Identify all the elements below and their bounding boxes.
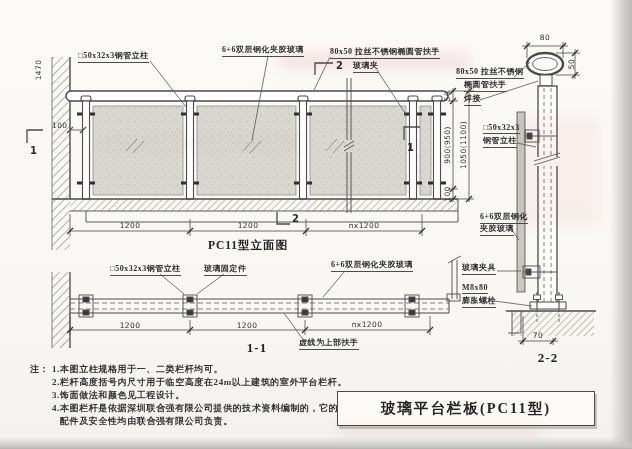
sheet-title: 玻璃平台栏板(PC11型)	[381, 399, 551, 418]
detail-slab	[506, 311, 596, 336]
rail-plan-lines	[70, 299, 449, 313]
bleed-through-mark	[100, 136, 300, 152]
detail-bolt-label-2: 膨胀螺栓	[462, 295, 496, 308]
drawing-sheet: □50x32x3钢管立柱 6+6双层钢化夹胶玻璃 80x50 拉丝不锈钢椭圆管扶…	[0, 0, 632, 449]
detail-dim-70: 70	[533, 331, 543, 340]
detail-post-label-1: □50x32x3	[483, 123, 520, 134]
section11-dim-bay2: 1200	[237, 321, 258, 330]
post-plan-clamps	[79, 295, 419, 317]
section11-dim-bay1: 1200	[120, 321, 141, 330]
section11-glass-label: 6+6双层钢化夹胶玻璃	[331, 259, 413, 272]
note-line-1: 1.本图立柱规格用于一、二类栏杆均可。	[52, 363, 223, 376]
page-edge-bottom	[0, 437, 632, 449]
detail-bolt-label-1: M8x80	[462, 283, 488, 294]
dim-bay1: 1200	[120, 221, 141, 230]
bleed-through-mark	[520, 115, 600, 225]
bleed-through-mark	[280, 52, 470, 70]
dim-100-offset: 100	[52, 121, 68, 130]
note-line-4: 4.本图栏杆是依据深圳联合强有限公司提供的技术资料编制的，它的	[52, 402, 338, 415]
detail-weld-label: 焊接	[464, 93, 481, 106]
dim-900-950: 900(950)	[443, 126, 452, 164]
section-marker-2-bottom: 2	[292, 213, 299, 224]
note-line-2: 2.栏杆高度括号内尺寸用于临空高度在24m以上建筑的室外平台栏杆。	[52, 376, 347, 389]
wall-hatch	[52, 272, 70, 348]
section11-fixing-label: 玻璃固定件	[204, 263, 247, 276]
dim-bay2: 1200	[238, 221, 259, 230]
page-edge-right	[610, 0, 632, 449]
detail-post-label-2: 钢管立柱	[483, 135, 517, 148]
dim-1470: 1470	[34, 60, 43, 81]
note-line-3: 3.饰面做法和颜色见工程设计。	[52, 389, 185, 402]
dim-100-base: 100	[443, 186, 452, 202]
detail-clamp-label: 玻璃夹具	[462, 262, 496, 275]
detail-dim-50: 50	[567, 59, 576, 69]
floor-slab	[52, 199, 458, 222]
detail-dim-80: 80	[540, 33, 550, 42]
rail-end-break	[447, 256, 461, 301]
section11-dim-bayn: nx1200	[352, 320, 383, 329]
section-marker-1-left: 1	[30, 145, 37, 156]
section11-dashed-note: 虚线为上部扶手	[299, 337, 359, 350]
dim-bayn: nx1200	[349, 221, 380, 230]
elevation-post-label: □50x32x3钢管立柱	[78, 50, 149, 63]
rail-neck	[540, 75, 552, 86]
elevation-title: PC11型立面图	[208, 238, 288, 253]
wall-hatch	[52, 57, 70, 250]
detail-rail-label-2: 椭圆管扶手	[464, 79, 507, 92]
detail22-title: 2-2	[538, 350, 558, 366]
section11-title: 1-1	[247, 340, 267, 356]
handrail-bar	[66, 91, 448, 101]
notes-prefix: 注：	[30, 363, 49, 376]
detail-glass-label-2: 夹胶玻璃	[480, 223, 514, 236]
title-block: 玻璃平台栏板(PC11型)	[337, 391, 595, 426]
bleed-through-mark	[340, 426, 540, 436]
note-line-5: 配件及安全性均由联合强有限公司负责。	[60, 415, 233, 428]
dim-rail-50: 50	[443, 91, 452, 101]
section11-post-label: □50x32x3钢管立柱	[110, 263, 181, 276]
dim-1050-1100: 1050(1100)	[459, 121, 468, 169]
section-marker-1-right: 1	[407, 142, 414, 153]
